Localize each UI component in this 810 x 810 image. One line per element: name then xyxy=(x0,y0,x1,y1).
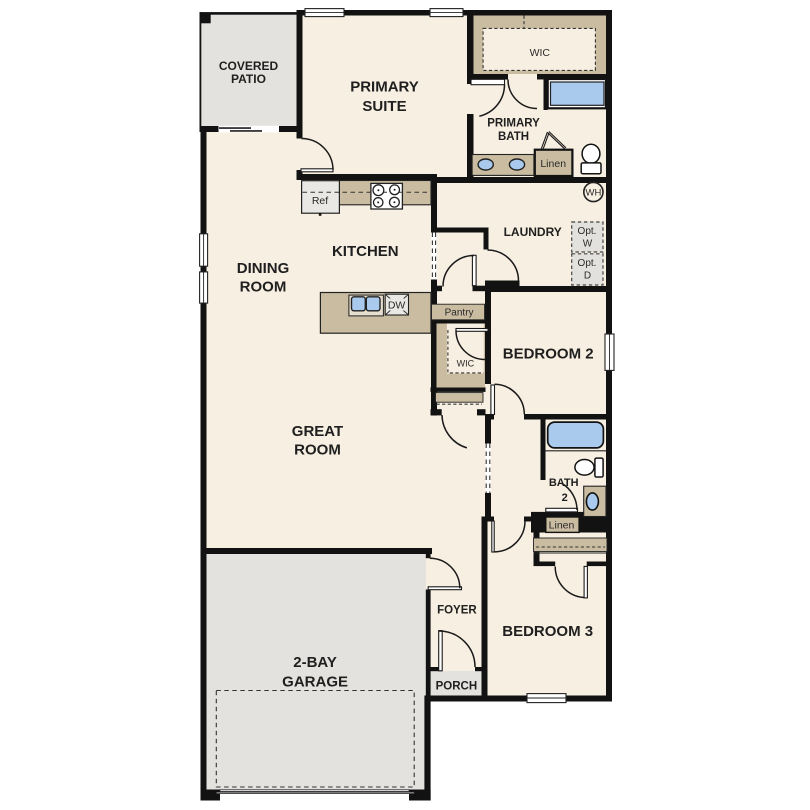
svg-text:SUITE: SUITE xyxy=(362,98,406,115)
svg-text:D: D xyxy=(584,271,591,282)
svg-text:BATH: BATH xyxy=(498,131,529,143)
svg-text:WIC: WIC xyxy=(457,359,475,369)
svg-text:2: 2 xyxy=(562,492,568,504)
svg-text:Ref: Ref xyxy=(312,195,328,207)
svg-text:2-BAY: 2-BAY xyxy=(293,654,337,671)
svg-text:PRIMARY: PRIMARY xyxy=(350,79,419,96)
svg-text:BEDROOM 3: BEDROOM 3 xyxy=(502,623,593,640)
svg-text:W: W xyxy=(583,239,593,250)
svg-text:Opt.: Opt. xyxy=(578,226,597,237)
svg-text:PRIMARY: PRIMARY xyxy=(487,118,540,130)
svg-text:Opt.: Opt. xyxy=(578,258,597,269)
svg-text:KITCHEN: KITCHEN xyxy=(332,243,399,260)
svg-text:GREAT: GREAT xyxy=(292,423,343,440)
svg-text:DW: DW xyxy=(388,299,406,311)
svg-text:GARAGE: GARAGE xyxy=(282,674,348,691)
svg-text:LAUNDRY: LAUNDRY xyxy=(504,225,562,239)
svg-text:WIC: WIC xyxy=(530,47,551,59)
svg-text:ROOM: ROOM xyxy=(294,442,341,459)
svg-text:BEDROOM 2: BEDROOM 2 xyxy=(503,345,594,362)
svg-text:WH: WH xyxy=(585,187,601,198)
svg-text:BATH: BATH xyxy=(549,477,579,489)
svg-text:DINING: DINING xyxy=(237,260,290,277)
svg-text:Linen: Linen xyxy=(549,520,575,532)
svg-text:FOYER: FOYER xyxy=(437,604,477,616)
svg-text:PATIO: PATIO xyxy=(231,72,266,86)
svg-text:Pantry: Pantry xyxy=(445,307,474,318)
svg-text:ROOM: ROOM xyxy=(240,279,287,296)
svg-text:Linen: Linen xyxy=(540,158,566,170)
svg-text:PORCH: PORCH xyxy=(436,681,478,693)
svg-text:COVERED: COVERED xyxy=(219,59,279,73)
